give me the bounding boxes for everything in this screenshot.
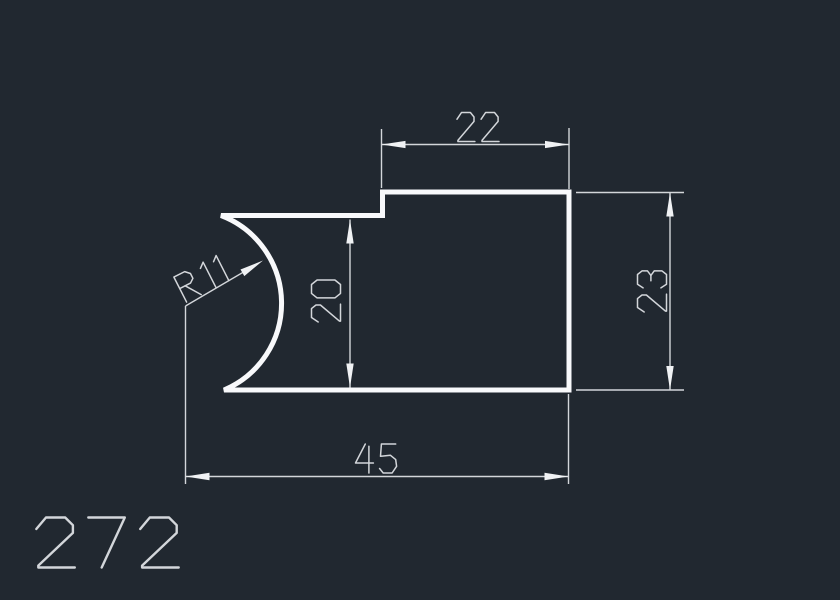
stroke-text (174, 256, 229, 302)
cad-canvas (0, 0, 840, 600)
dim-label-top-width (457, 113, 499, 142)
arrowhead-right (545, 473, 569, 480)
glyph-stroke (140, 518, 179, 568)
glyph-stroke (356, 444, 374, 463)
glyph-stroke (651, 271, 667, 288)
dim-label-total-width (356, 444, 397, 473)
glyph-stroke (198, 262, 215, 289)
arrowhead-top (666, 193, 673, 217)
glyph-stroke (36, 518, 75, 568)
arrowhead-leader (241, 261, 264, 277)
stroke-text (36, 518, 178, 568)
dim-label-radius (174, 256, 229, 302)
dim-top-width (382, 113, 570, 190)
dim-label-left-height (312, 280, 341, 322)
arrowhead-top (346, 220, 353, 244)
arrowhead-bottom (346, 364, 353, 388)
glyph-stroke (174, 270, 201, 302)
glyph-stroke (312, 304, 341, 322)
arrowhead-left (382, 141, 406, 148)
dim-label-right-height (638, 271, 667, 312)
part-number-label (36, 518, 178, 568)
stroke-text (638, 271, 667, 312)
stroke-text (312, 280, 341, 322)
glyph-stroke (638, 294, 667, 312)
arrowhead-left (186, 473, 210, 480)
profile-outline (221, 192, 569, 390)
dim-total-width (186, 306, 569, 484)
glyph-stroke (88, 518, 125, 568)
glyph-stroke (638, 271, 651, 288)
stroke-text (457, 113, 499, 142)
glyph-stroke (380, 444, 397, 473)
glyph-stroke (212, 256, 229, 283)
dim-left-height (312, 220, 354, 388)
glyph-stroke (481, 113, 499, 142)
arrowhead-right (545, 141, 569, 148)
glyph-stroke (312, 280, 341, 298)
glyph-stroke (457, 113, 475, 142)
radius-callout (174, 256, 263, 306)
stroke-text (356, 444, 397, 473)
arrowhead-bottom (666, 366, 673, 390)
dim-right-height (576, 193, 684, 391)
